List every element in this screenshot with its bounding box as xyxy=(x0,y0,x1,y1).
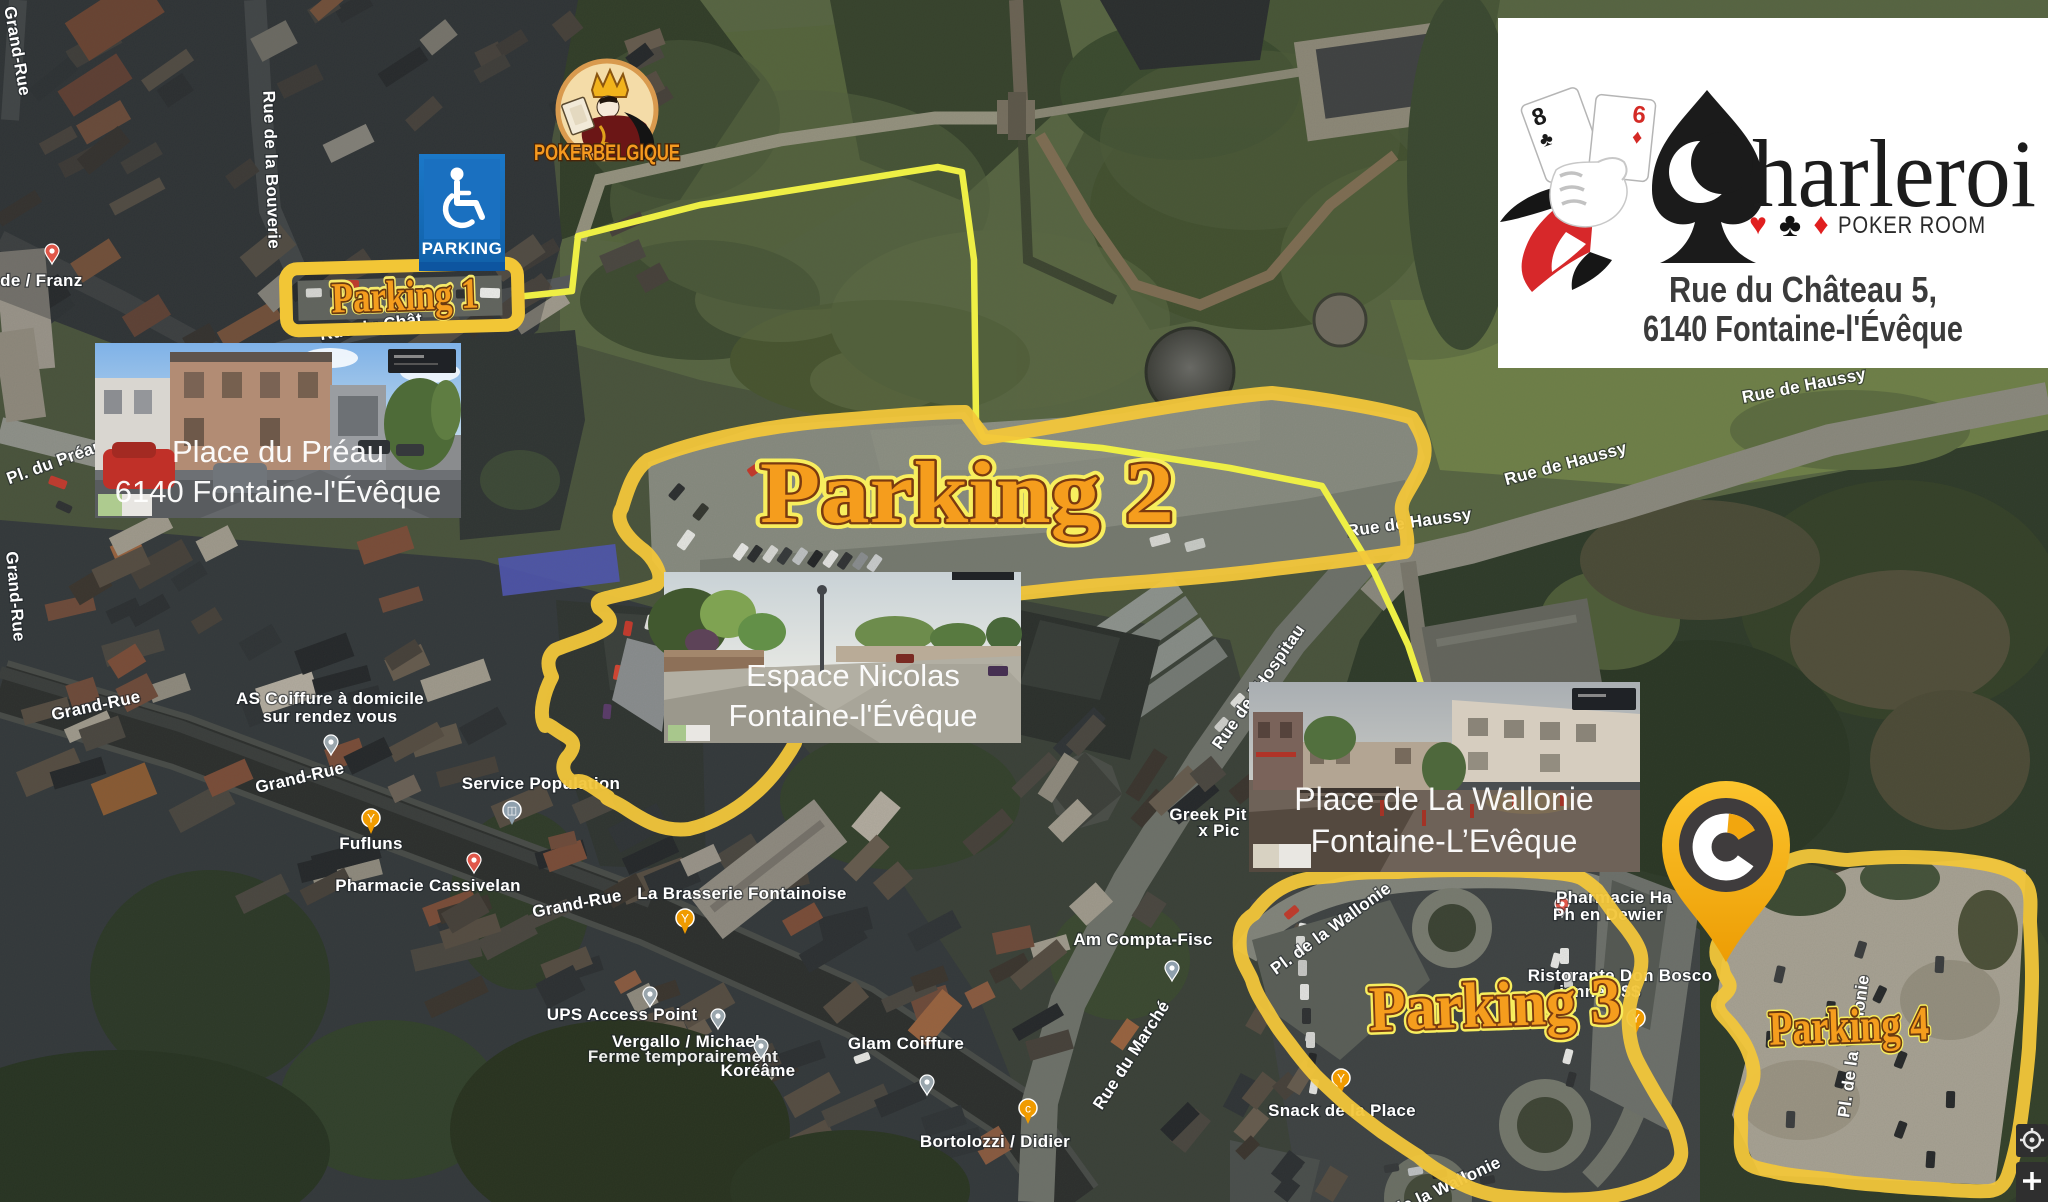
svg-text:nde / Franz: nde / Franz xyxy=(0,271,83,290)
svg-text:Pharmacie Cassivelan: Pharmacie Cassivelan xyxy=(335,876,521,895)
svg-text:Place de La Wallonie: Place de La Wallonie xyxy=(1294,781,1593,817)
svg-text:Fontaine-L’Evêque: Fontaine-L’Evêque xyxy=(1311,823,1578,859)
svg-text:6: 6 xyxy=(1631,101,1647,129)
svg-text:POKER ROOM: POKER ROOM xyxy=(1838,212,1986,239)
svg-text:POKERBELGIQUE: POKERBELGIQUE xyxy=(534,140,680,165)
svg-text:c: c xyxy=(1025,1102,1031,1116)
svg-text:sur rendez vous: sur rendez vous xyxy=(263,707,398,726)
svg-text:♦: ♦ xyxy=(1813,208,1828,241)
svg-text:Y: Y xyxy=(367,812,375,826)
svg-text:Espace Nicolas: Espace Nicolas xyxy=(746,658,960,693)
svg-text:Fufluns: Fufluns xyxy=(339,834,402,853)
svg-text:♣: ♣ xyxy=(1779,206,1801,244)
svg-text:Y: Y xyxy=(1337,1072,1345,1086)
svg-text:AS Coiffure à domicile: AS Coiffure à domicile xyxy=(236,689,424,708)
svg-text:Fontaine-l'Évêque: Fontaine-l'Évêque xyxy=(729,698,978,733)
svg-text:Y: Y xyxy=(681,912,689,926)
svg-text:Glam Coiffure: Glam Coiffure xyxy=(848,1034,964,1053)
svg-text:Koréâme: Koréâme xyxy=(721,1061,796,1080)
svg-text:Am Compta-Fisc: Am Compta-Fisc xyxy=(1073,930,1212,949)
svg-text:UPS Access Point: UPS Access Point xyxy=(547,1005,698,1024)
svg-text:6140 Fontaine-l'Évêque: 6140 Fontaine-l'Évêque xyxy=(115,474,441,509)
svg-text:Rue du Château 5,: Rue du Château 5, xyxy=(1669,269,1937,310)
svg-text:Parking 4: Parking 4 xyxy=(1768,997,1930,1056)
svg-text:Parking 1: Parking 1 xyxy=(331,270,480,322)
svg-text:♥: ♥ xyxy=(1749,208,1767,241)
svg-text:PARKING: PARKING xyxy=(422,239,503,258)
svg-text:Parking 2: Parking 2 xyxy=(760,445,1174,542)
svg-text:Bortolozzi / Didier: Bortolozzi / Didier xyxy=(920,1132,1070,1151)
svg-text:La Brasserie Fontainoise: La Brasserie Fontainoise xyxy=(637,884,846,903)
svg-text:6140 Fontaine-l'Évêque: 6140 Fontaine-l'Évêque xyxy=(1643,308,1963,349)
svg-text:Parking 3: Parking 3 xyxy=(1368,965,1622,1045)
svg-text:x Pic: x Pic xyxy=(1198,821,1239,840)
svg-text:Place du Préau: Place du Préau xyxy=(172,434,384,469)
svg-text:◫: ◫ xyxy=(507,805,517,817)
